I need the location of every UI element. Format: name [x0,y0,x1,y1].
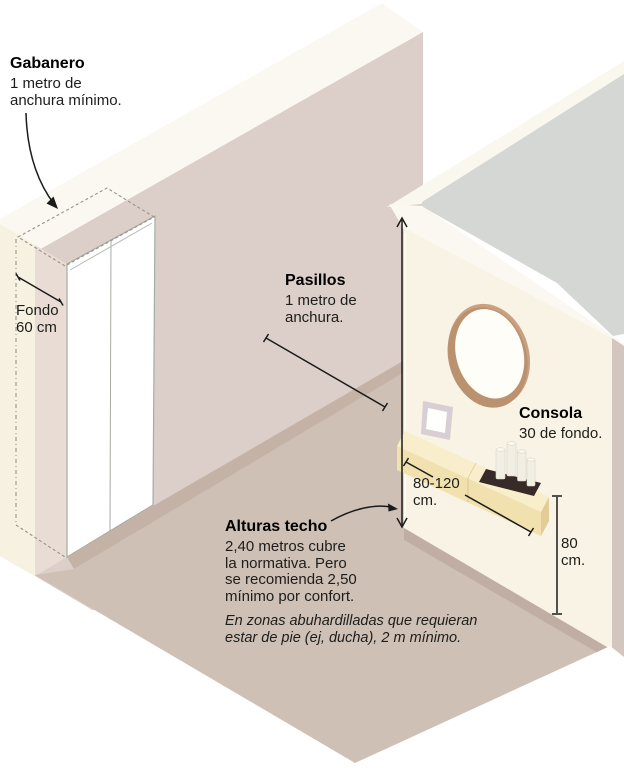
consola-label: Consola 30 de fondo. [519,405,602,443]
pasillos-title: Pasillos [285,272,357,290]
infographic-canvas: Gabanero 1 metro de anchura mínimo. Fond… [0,0,624,768]
wardrobe-frame-strip [35,245,67,576]
consola-alto-label: 80 cm. [561,535,585,569]
isometric-room-illustration [0,0,624,768]
fondo-label: Fondo 60 cm [16,302,59,336]
gabanero-label: Gabanero 1 metro de anchura mínimo. [10,55,122,109]
alturas-label: Alturas techo 2,40 metros cubre la norma… [225,518,477,646]
alturas-note: En zonas abuhardilladas que requieran es… [225,613,477,646]
room-right-side [612,338,624,660]
picture-frame [421,401,453,440]
alturas-title: Alturas techo [225,518,477,536]
consola-title: Consola [519,405,602,423]
gabanero-title: Gabanero [10,55,122,73]
pasillos-label: Pasillos 1 metro de anchura. [285,272,357,326]
consola-ancho-label: 80-120 cm. [413,475,460,509]
